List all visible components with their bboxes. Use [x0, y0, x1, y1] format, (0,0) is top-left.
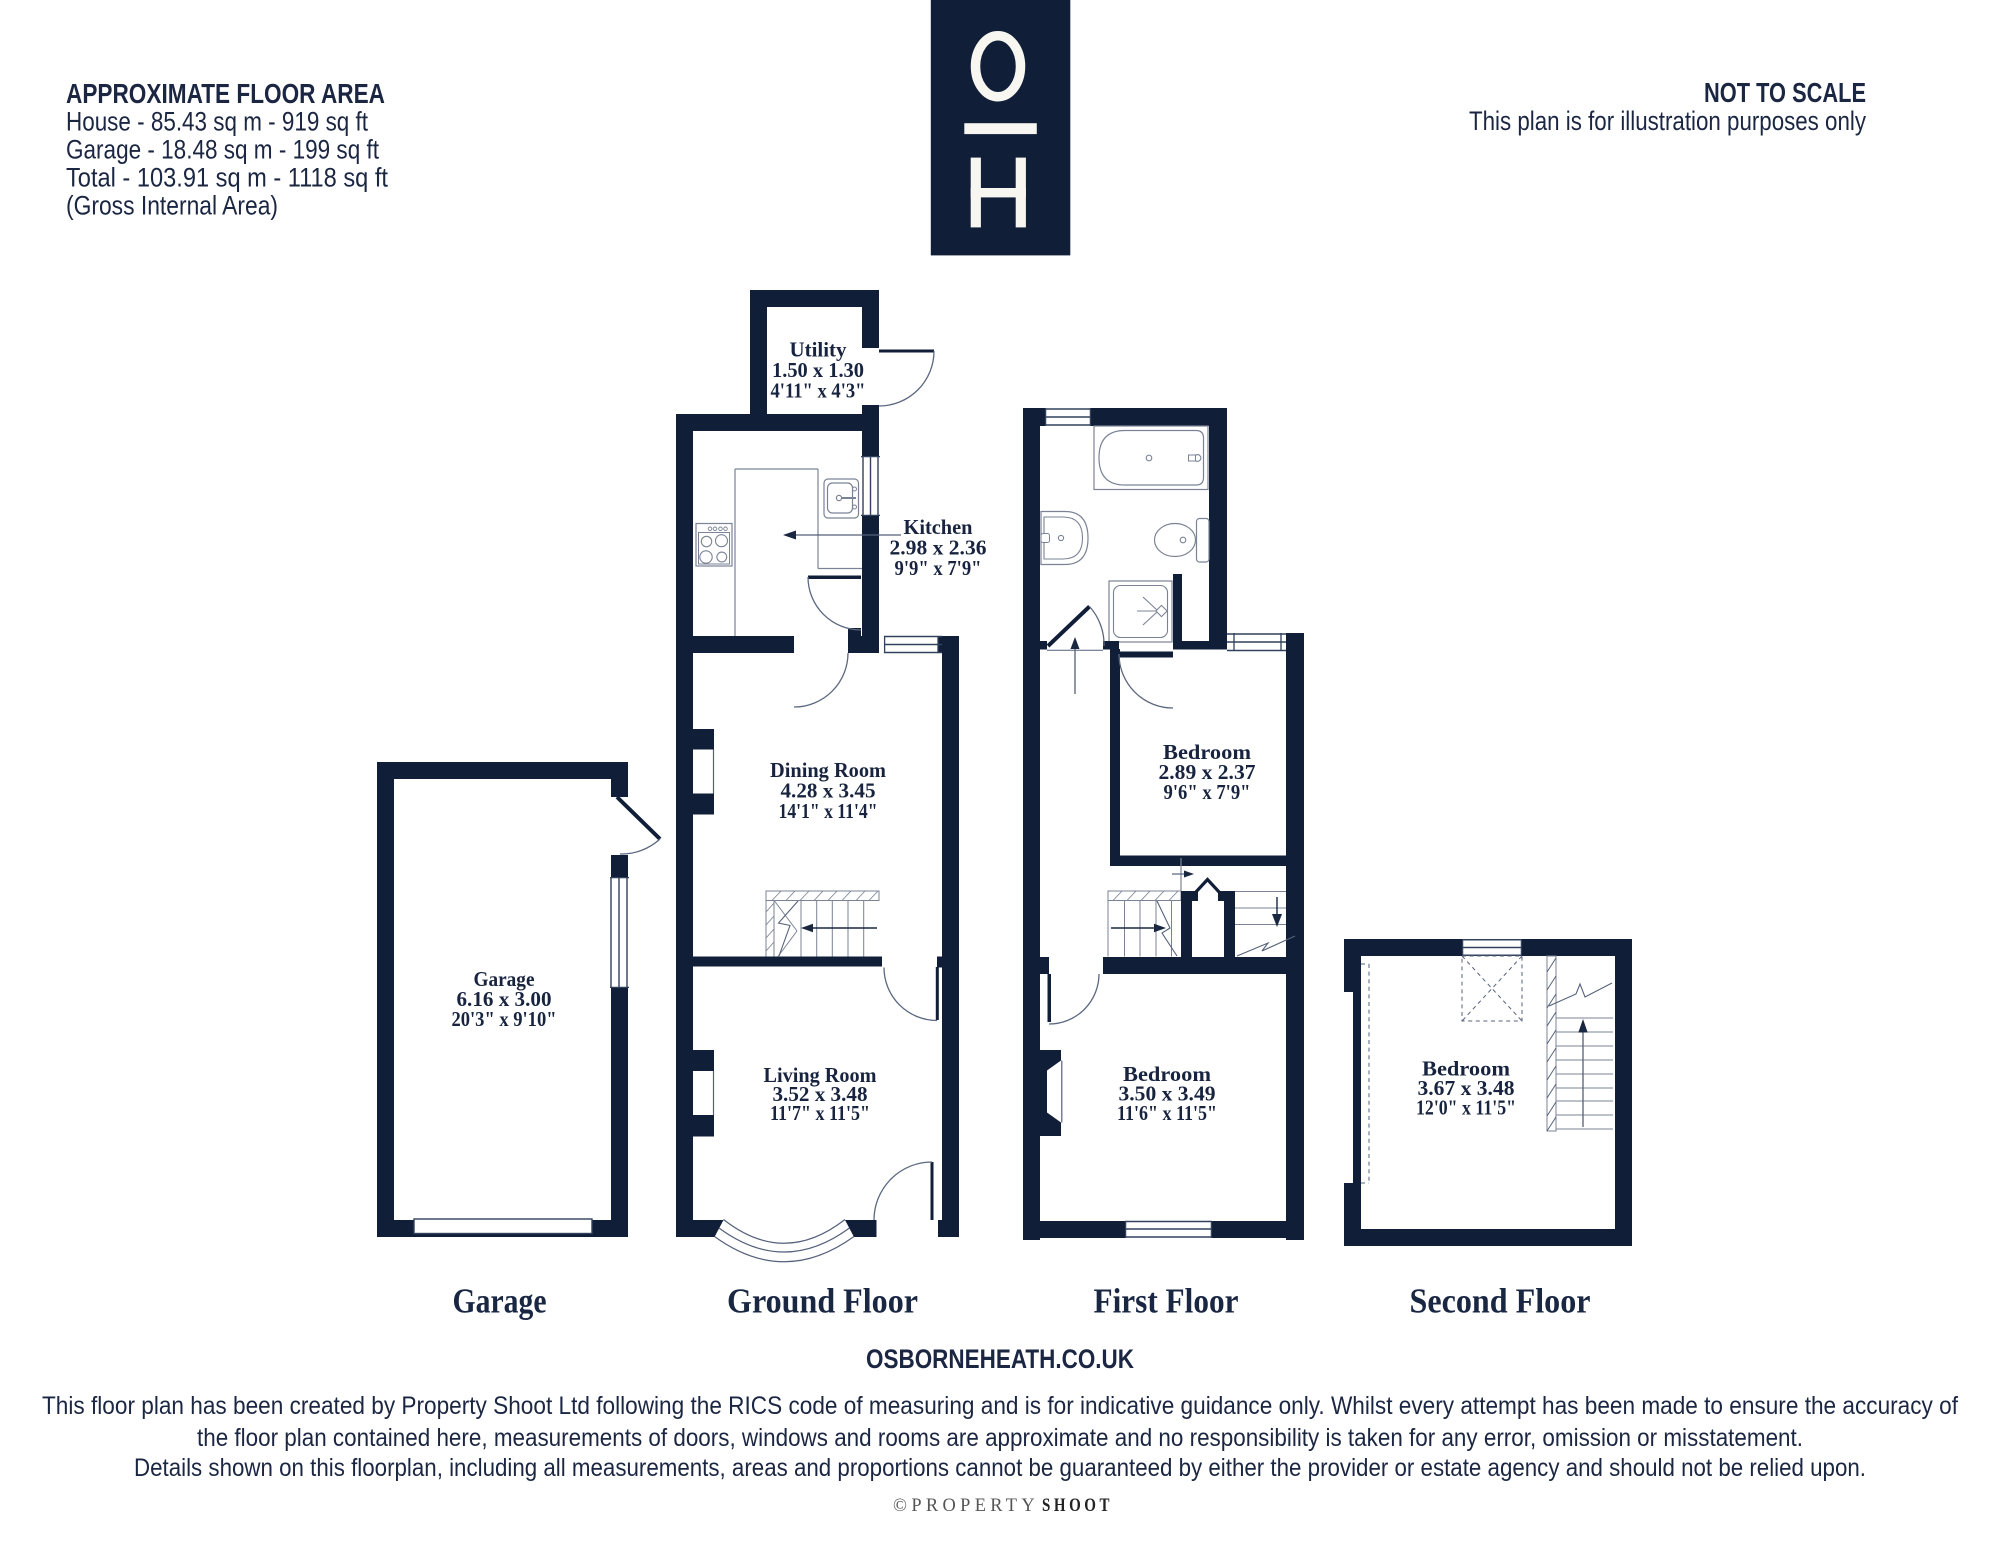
svg-text:NOT TO SCALE: NOT TO SCALE: [1704, 77, 1866, 108]
svg-text:This plan is for illustration: This plan is for illustration purposes o…: [1469, 106, 1866, 136]
svg-text:SHOOT: SHOOT: [1042, 1495, 1113, 1516]
svg-text:9'6" x 7'9": 9'6" x 7'9": [1164, 780, 1251, 804]
svg-text:APPROXIMATE FLOOR AREA: APPROXIMATE FLOOR AREA: [66, 78, 385, 109]
svg-text:20'3" x 9'10": 20'3" x 9'10": [452, 1007, 557, 1031]
svg-text:12'0" x 11'5": 12'0" x 11'5": [1416, 1096, 1516, 1120]
svg-text:the floor plan contained here,: the floor plan contained here, measureme…: [197, 1424, 1803, 1452]
svg-text:(Gross Internal Area): (Gross Internal Area): [66, 191, 278, 221]
svg-text:Details shown on this floorpla: Details shown on this floorplan, includi…: [134, 1454, 1866, 1482]
svg-text:14'1" x 11'4": 14'1" x 11'4": [779, 799, 878, 823]
svg-text:9'9" x 7'9": 9'9" x 7'9": [895, 556, 982, 580]
svg-text:House - 85.43 sq m - 919 sq ft: House - 85.43 sq m - 919 sq ft: [66, 107, 368, 137]
svg-text:First Floor: First Floor: [1094, 1282, 1239, 1321]
svg-text:OSBORNEHEATH.CO.UK: OSBORNEHEATH.CO.UK: [866, 1344, 1134, 1374]
svg-text:Garage - 18.48 sq m - 199 sq f: Garage - 18.48 sq m - 199 sq ft: [66, 135, 379, 165]
svg-text:This floor plan has been creat: This floor plan has been created by Prop…: [42, 1392, 1958, 1420]
svg-text:Total - 103.91 sq m - 1118 sq: Total - 103.91 sq m - 1118 sq ft: [66, 163, 388, 193]
svg-text:Ground Floor: Ground Floor: [727, 1282, 918, 1321]
svg-text:4'11" x 4'3": 4'11" x 4'3": [771, 379, 866, 403]
svg-text:Garage: Garage: [453, 1282, 547, 1321]
svg-text:Second Floor: Second Floor: [1410, 1282, 1591, 1321]
svg-text:©PROPERTY: ©PROPERTY: [893, 1495, 1039, 1516]
svg-text:11'7" x 11'5": 11'7" x 11'5": [770, 1101, 870, 1125]
svg-text:11'6" x 11'5": 11'6" x 11'5": [1117, 1101, 1217, 1125]
